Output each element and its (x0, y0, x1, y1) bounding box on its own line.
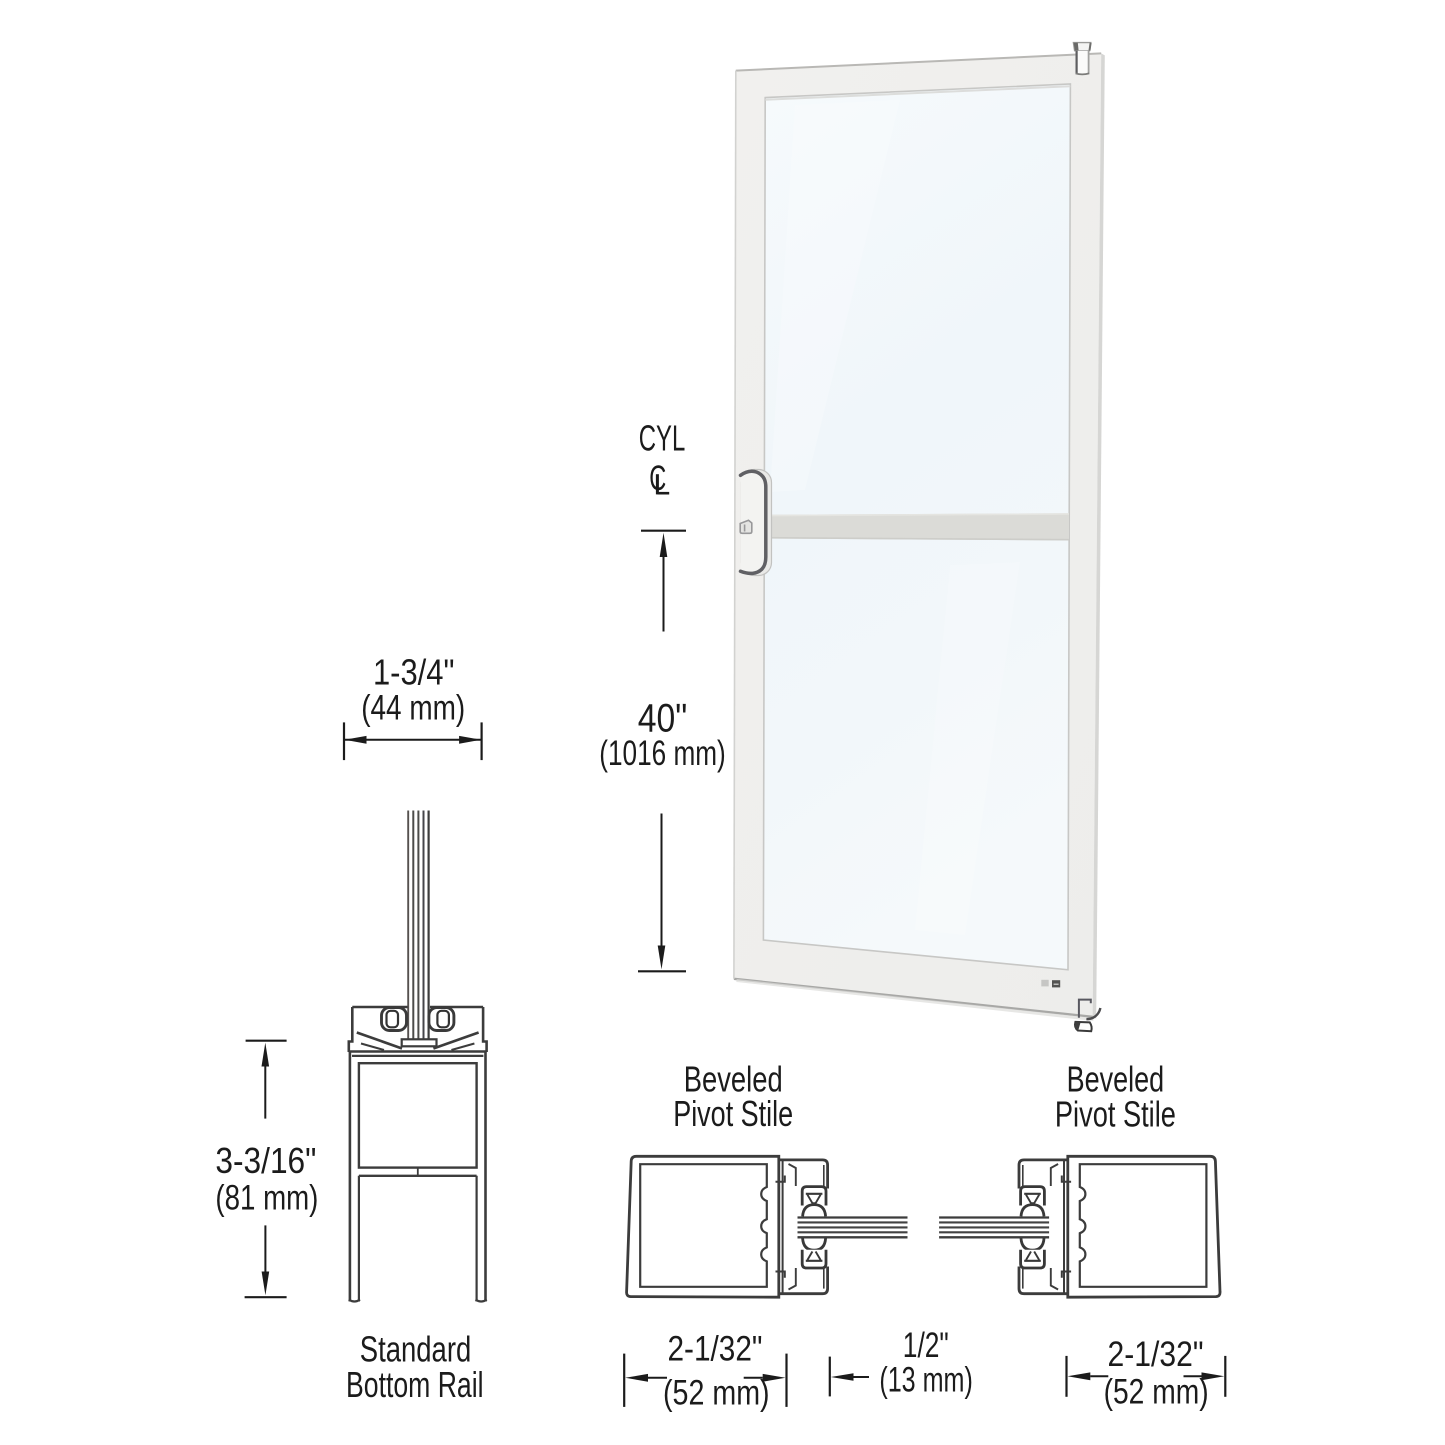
svg-text:(52 mm): (52 mm) (663, 1374, 770, 1413)
svg-text:2-1/32": 2-1/32" (668, 1330, 763, 1369)
svg-text:(44 mm): (44 mm) (361, 688, 465, 727)
svg-text:2-1/32": 2-1/32" (1108, 1335, 1204, 1374)
svg-text:Pivot Stile: Pivot Stile (673, 1093, 793, 1134)
svg-text:(1016 mm): (1016 mm) (599, 734, 726, 773)
svg-text:CYL: CYL (639, 417, 686, 458)
svg-text:Pivot Stile: Pivot Stile (1055, 1094, 1176, 1135)
svg-text:(81 mm): (81 mm) (215, 1179, 318, 1218)
svg-text:(52 mm): (52 mm) (1104, 1373, 1209, 1412)
svg-text:Bottom Rail: Bottom Rail (346, 1364, 484, 1405)
svg-text:1-3/4": 1-3/4" (373, 651, 455, 692)
svg-text:3-3/16": 3-3/16" (215, 1140, 316, 1181)
svg-text:1/2": 1/2" (903, 1326, 949, 1365)
svg-text:(13 mm): (13 mm) (879, 1360, 973, 1399)
